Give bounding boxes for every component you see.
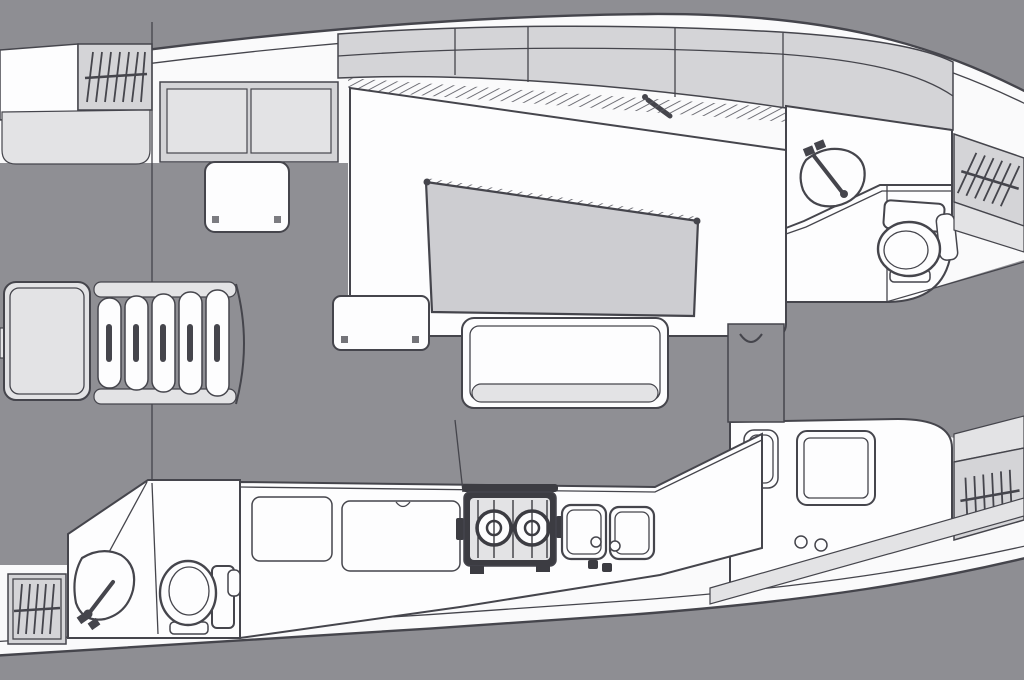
flush-pump <box>228 570 240 596</box>
chart-table <box>797 431 875 505</box>
berth-panel <box>0 44 78 120</box>
toilet <box>160 561 240 634</box>
cabinet-door <box>167 89 247 153</box>
toilet-bowl <box>878 222 940 276</box>
yacht-floor-plan <box>0 0 1024 680</box>
cabinet-door <box>251 89 331 153</box>
forward-head <box>786 106 958 302</box>
instrument-knob <box>815 539 827 551</box>
instrument-knob <box>795 536 807 548</box>
faucet-base <box>610 541 620 551</box>
partition-cabinet <box>728 324 784 422</box>
locker-lid <box>252 497 332 561</box>
shelf <box>2 110 150 164</box>
floor-plan-image <box>0 0 1024 680</box>
engine-box <box>4 282 90 400</box>
fridge-lid <box>342 501 460 571</box>
faucet-base <box>591 537 601 547</box>
bench-cushion-roll <box>472 384 658 402</box>
stove <box>456 484 564 574</box>
companionway-stairs <box>94 282 244 404</box>
